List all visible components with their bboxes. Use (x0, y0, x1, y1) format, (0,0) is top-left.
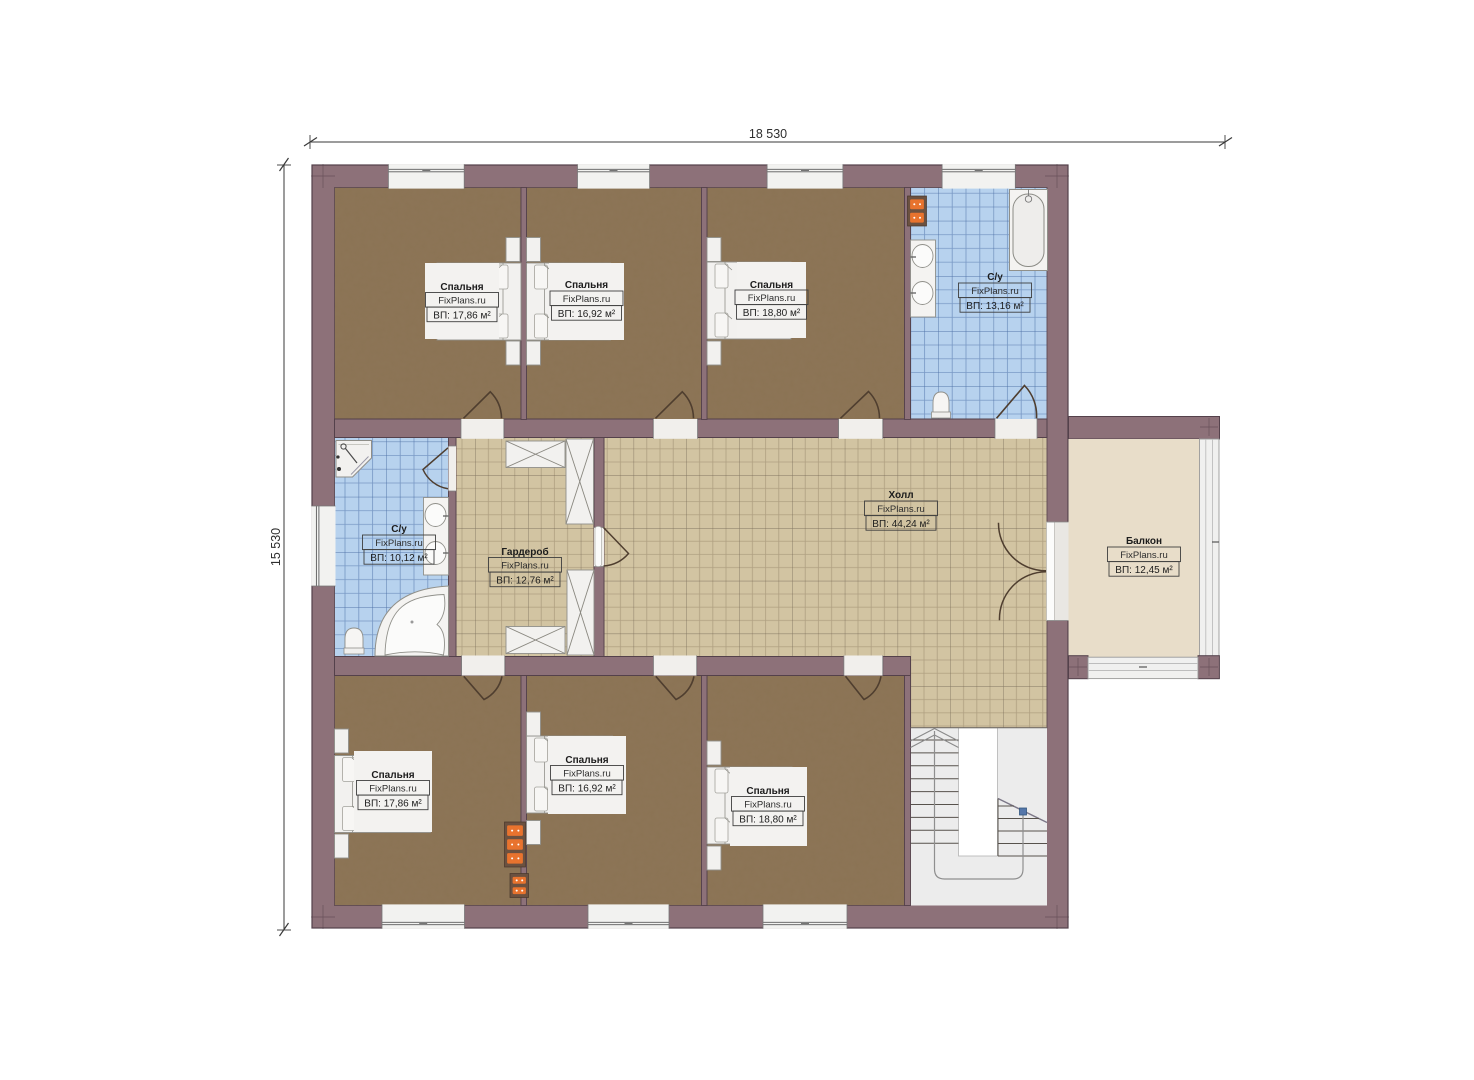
svg-text:FixPlans.ru: FixPlans.ru (438, 296, 486, 307)
svg-text:FixPlans.ru: FixPlans.ru (563, 769, 611, 780)
svg-text:ВП: 12,76 м²: ВП: 12,76 м² (496, 575, 554, 586)
svg-text:18 530: 18 530 (749, 127, 787, 141)
svg-text:С/у: С/у (987, 272, 1003, 283)
svg-text:FixPlans.ru: FixPlans.ru (748, 293, 796, 304)
svg-text:FixPlans.ru: FixPlans.ru (375, 538, 423, 549)
svg-text:15 530: 15 530 (269, 528, 283, 566)
svg-text:Спальня: Спальня (746, 786, 789, 797)
svg-text:Гардероб: Гардероб (501, 546, 548, 558)
svg-text:Балкон: Балкон (1126, 536, 1162, 547)
svg-text:ВП: 17,86 м²: ВП: 17,86 м² (433, 310, 491, 321)
svg-text:FixPlans.ru: FixPlans.ru (744, 800, 792, 811)
svg-text:Спальня: Спальня (440, 282, 483, 293)
svg-text:FixPlans.ru: FixPlans.ru (1120, 550, 1168, 561)
svg-text:FixPlans.ru: FixPlans.ru (369, 784, 417, 795)
svg-text:Спальня: Спальня (371, 770, 414, 781)
svg-text:ВП: 18,80 м²: ВП: 18,80 м² (743, 308, 801, 319)
svg-text:ВП: 13,16 м²: ВП: 13,16 м² (966, 301, 1024, 312)
svg-text:ВП: 18,80 м²: ВП: 18,80 м² (739, 814, 797, 825)
svg-text:Спальня: Спальня (750, 280, 793, 291)
svg-text:ВП: 16,92 м²: ВП: 16,92 м² (558, 309, 616, 320)
svg-text:ВП: 16,92 м²: ВП: 16,92 м² (558, 783, 616, 794)
svg-text:FixPlans.ru: FixPlans.ru (501, 561, 549, 572)
svg-text:Холл: Холл (888, 490, 913, 501)
svg-text:ВП: 44,24 м²: ВП: 44,24 м² (872, 519, 930, 530)
svg-text:С/у: С/у (391, 524, 407, 535)
svg-text:Спальня: Спальня (565, 755, 608, 766)
svg-text:ВП: 10,12 м²: ВП: 10,12 м² (370, 553, 428, 564)
svg-text:FixPlans.ru: FixPlans.ru (877, 504, 925, 515)
svg-text:FixPlans.ru: FixPlans.ru (971, 286, 1019, 297)
svg-text:Спальня: Спальня (565, 280, 608, 291)
svg-text:ВП: 12,45 м²: ВП: 12,45 м² (1115, 565, 1173, 576)
svg-text:FixPlans.ru: FixPlans.ru (563, 294, 611, 305)
svg-text:ВП: 17,86 м²: ВП: 17,86 м² (364, 798, 422, 809)
